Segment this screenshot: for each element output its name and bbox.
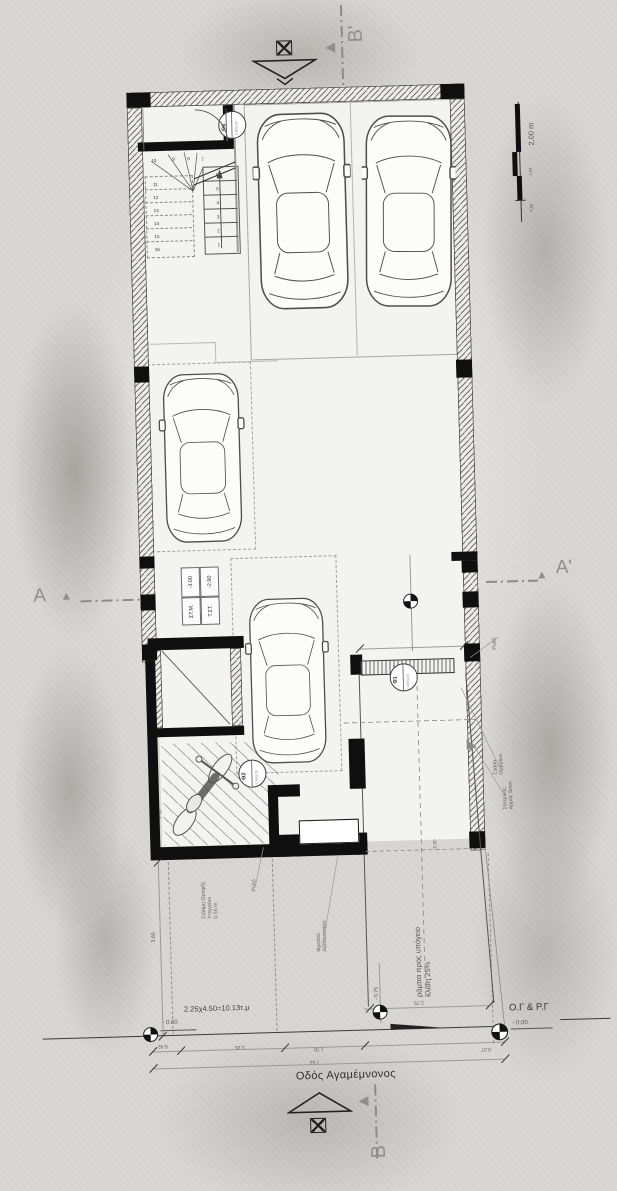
wall-segment	[462, 591, 478, 607]
level-underline	[161, 1029, 197, 1031]
ceiling-level-label: Στάθμη Οροφής Υπογείου 0.55 m	[200, 865, 220, 919]
level-marker-000	[490, 1023, 508, 1041]
door-marker-size: 0.90/2.20	[406, 674, 410, 687]
scale-label-1m: 1,00	[529, 168, 534, 176]
section-line-a	[80, 599, 142, 602]
section-triangle-b: ◀	[358, 1093, 368, 1109]
dim-ramp-bottom: 2.75	[414, 999, 424, 1005]
scale-label-05m: 0,50	[530, 204, 535, 212]
car-top-left	[251, 109, 355, 314]
car-center	[237, 594, 338, 767]
level-marker-minus3	[402, 593, 418, 609]
stair-number: 12	[153, 195, 158, 200]
garage-window-box	[299, 819, 360, 845]
door-marker-size: 0.90/2.20	[234, 121, 238, 134]
section-triangle-a: ▲	[60, 589, 72, 603]
scale-bar-segment	[512, 152, 518, 176]
door-marker-id: Θ1	[393, 676, 399, 684]
section-label-a: A	[33, 585, 46, 608]
section-triangle-b-prime: ◀	[325, 39, 335, 55]
north-box-icon	[276, 40, 292, 55]
stair-number: 3	[217, 214, 220, 219]
wall-segment	[469, 831, 485, 848]
section-line-b-prime	[340, 5, 344, 89]
ceiling-label-line3: 0.55 m	[212, 865, 220, 919]
stair-number: 13	[154, 208, 159, 213]
wall-segment	[456, 359, 472, 377]
wall-segment	[140, 594, 155, 610]
stair-number: 8	[187, 156, 190, 161]
door-marker-divider	[231, 112, 233, 138]
lift-shaft-label: Φρεάτιο Ανελκυστήρα	[314, 882, 328, 952]
dim-line	[154, 1059, 506, 1070]
wall-segment	[462, 560, 478, 572]
blueprint-scene: Αποθήκη Θ3 0.90/2.20 1 2 3 4 5 6 7 8 9 1…	[0, 0, 617, 1191]
section-label-b: B	[368, 1145, 392, 1159]
shaft-label-line2: Ανελκυστήρα	[320, 882, 328, 952]
section-label-b-prime: B'	[345, 25, 369, 43]
door-marker-divider	[402, 664, 404, 690]
stair-number: 6	[216, 172, 219, 177]
ramp-wall	[348, 738, 365, 788]
plan-rotor: Αποθήκη Θ3 0.90/2.20 1 2 3 4 5 6 7 8 9 1…	[0, 0, 617, 1191]
street-line	[43, 1026, 493, 1040]
level-marker-075	[372, 1004, 388, 1020]
stair-number: 16	[155, 247, 160, 252]
stair-number: 5	[216, 186, 219, 191]
area-text-street: 2.25χ4.50=10.13τ.μ	[184, 1004, 250, 1015]
section-label-a-prime: A'	[555, 557, 572, 580]
level-table-value: -2.90	[200, 566, 220, 597]
entry-arrow-bottom	[286, 1089, 353, 1117]
stair-number: 11	[153, 182, 158, 187]
seismic-joint-label: Σεισμικός Αρμός 5mm	[501, 763, 514, 809]
level-table: ΣΤ.Μ. -3.00 Τ.ΣΤ. -2.90	[181, 566, 221, 625]
motorcycle	[163, 748, 248, 846]
stair-number: 4	[216, 200, 219, 205]
car-top-right	[362, 111, 456, 311]
scale-bar-segment	[517, 176, 523, 200]
wall-segment	[440, 83, 464, 99]
level-table-value: -3.00	[181, 567, 201, 598]
level-street-zero: - 0.00	[512, 1020, 528, 1028]
dim-ramp-len: 6.00	[433, 839, 439, 848]
boundary-label: Ο.Γ & Ρ.Γ	[509, 1001, 549, 1013]
property-line-dashed	[168, 862, 174, 1034]
wall-segment	[139, 556, 154, 568]
stair-number: 2	[217, 228, 220, 233]
stair-number: 15	[154, 234, 159, 239]
section-triangle-a-prime: ▲	[536, 567, 548, 581]
stair-number: 14	[154, 221, 159, 226]
scale-bar-segment	[515, 104, 521, 152]
wall-segment	[464, 643, 480, 661]
roller-right-label: Ρολό	[492, 637, 499, 650]
street-label: Οδός Αγαμέμνονος	[296, 1068, 396, 1084]
stair-number: 9	[172, 157, 175, 162]
property-line-dashed	[488, 853, 494, 1043]
stair-number: 1	[218, 242, 221, 247]
dim-chain-042: 0.42	[158, 1042, 168, 1048]
roller-left-label: Ρολό	[251, 879, 258, 892]
car-mid-left	[154, 370, 251, 547]
north-box-icon-bottom	[310, 1118, 326, 1133]
ramp-label-line2: κλίση 25%	[421, 875, 433, 997]
wall-segment	[134, 366, 149, 382]
ramp-label: ράμπα προς υπόγειο κλίση 25%	[412, 875, 433, 997]
wall-segment	[126, 92, 150, 108]
dim-front-360: 3.60	[151, 932, 157, 942]
joint-label-line2: Αρμός 5mm	[507, 763, 514, 809]
door-marker-id: Θ2	[241, 772, 247, 780]
level-table-label: Τ.ΣΤ.	[200, 596, 220, 625]
dim-line	[153, 1042, 505, 1053]
door-marker-divider	[251, 761, 253, 787]
level-underline	[511, 1027, 553, 1029]
stair-number: 7	[201, 157, 204, 162]
property-line-dashed	[272, 859, 278, 1031]
street-line-right	[560, 1018, 610, 1021]
dim-chain-037: 0.37	[481, 1045, 491, 1051]
level-street-low: - 0.60	[162, 1020, 178, 1028]
scale-label-2m: 2,00 m	[527, 123, 536, 146]
entry-arrow-top	[251, 58, 318, 88]
dim-line-front	[158, 862, 164, 1036]
level-marker-060	[142, 1026, 158, 1042]
door-marker-size: 0.90/2.20	[254, 770, 258, 783]
door-marker-id: Θ3	[221, 124, 227, 132]
stair-number: 10	[151, 158, 156, 163]
section-line-a-prime	[486, 580, 538, 583]
level-table-label: ΣΤ.Μ.	[181, 597, 201, 626]
